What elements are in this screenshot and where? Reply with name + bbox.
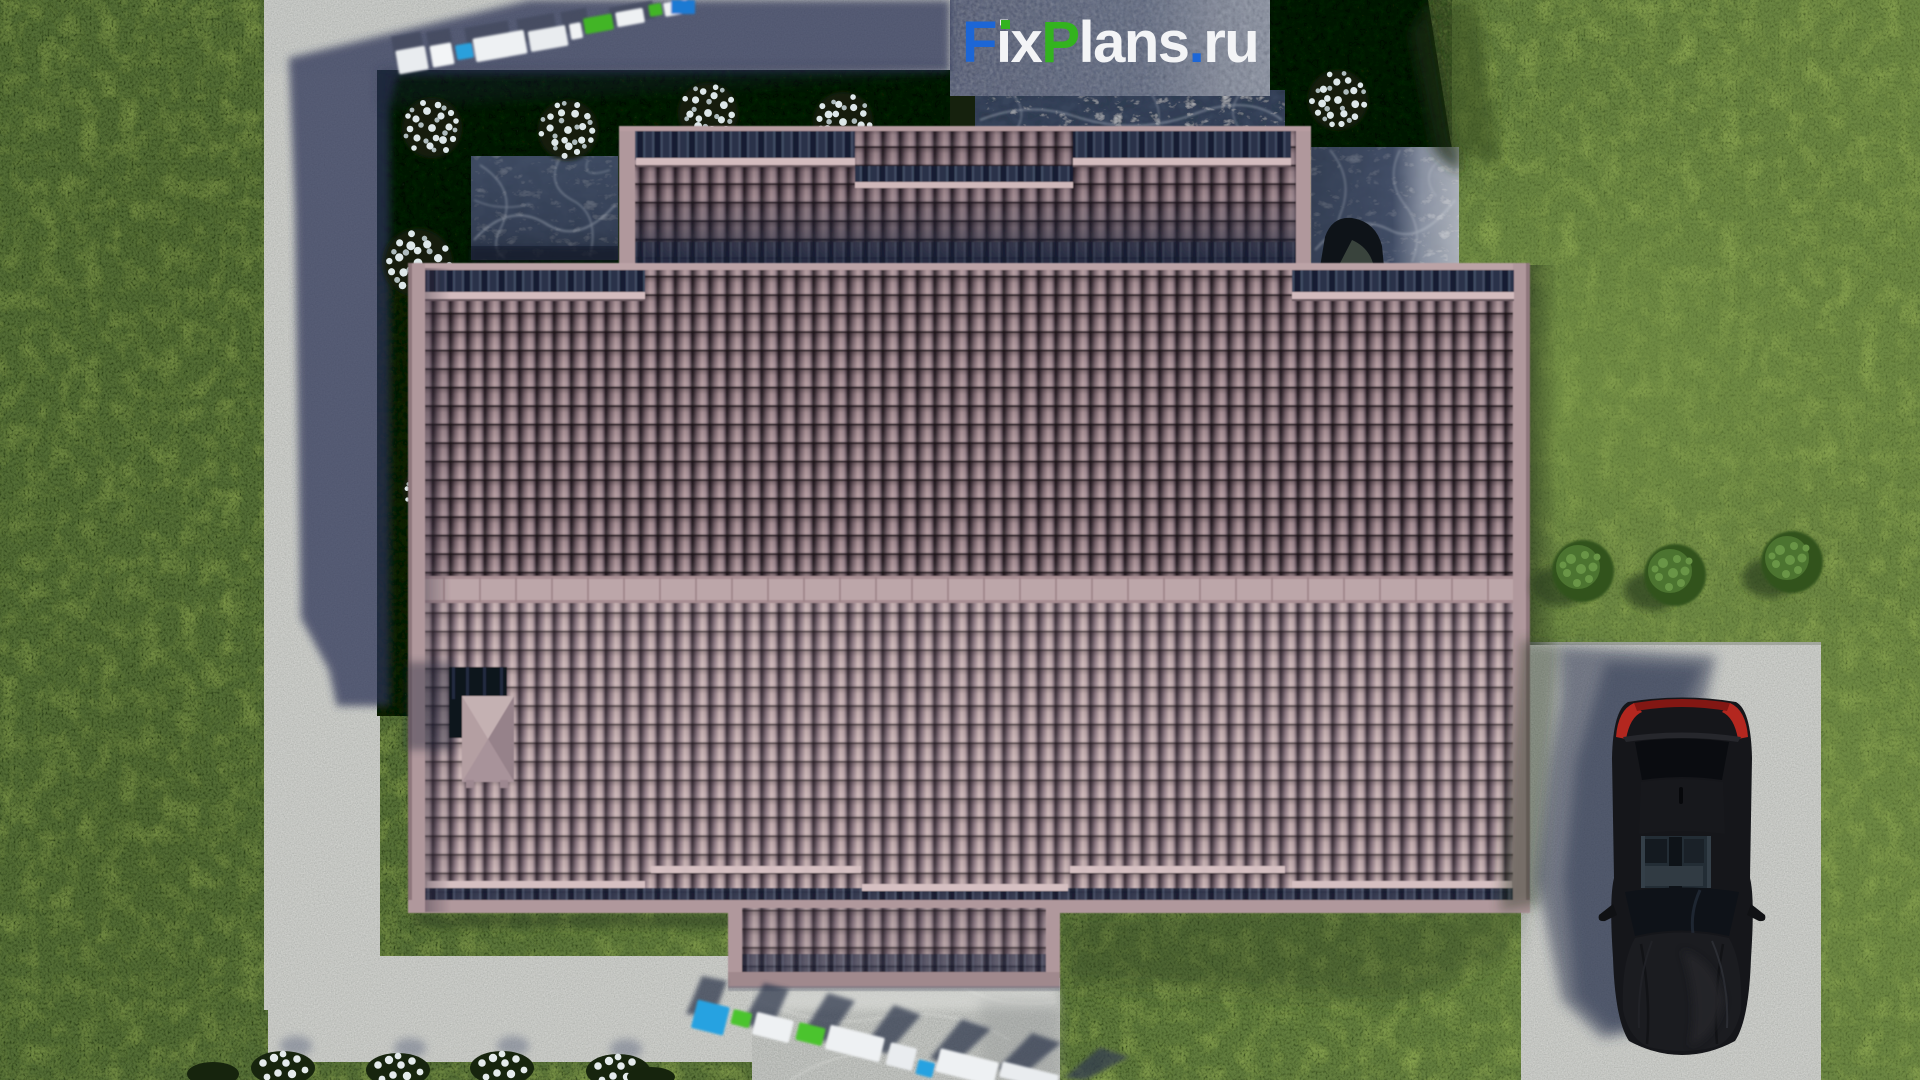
svg-text:FixPlans.ru: FixPlans.ru — [962, 10, 1258, 75]
